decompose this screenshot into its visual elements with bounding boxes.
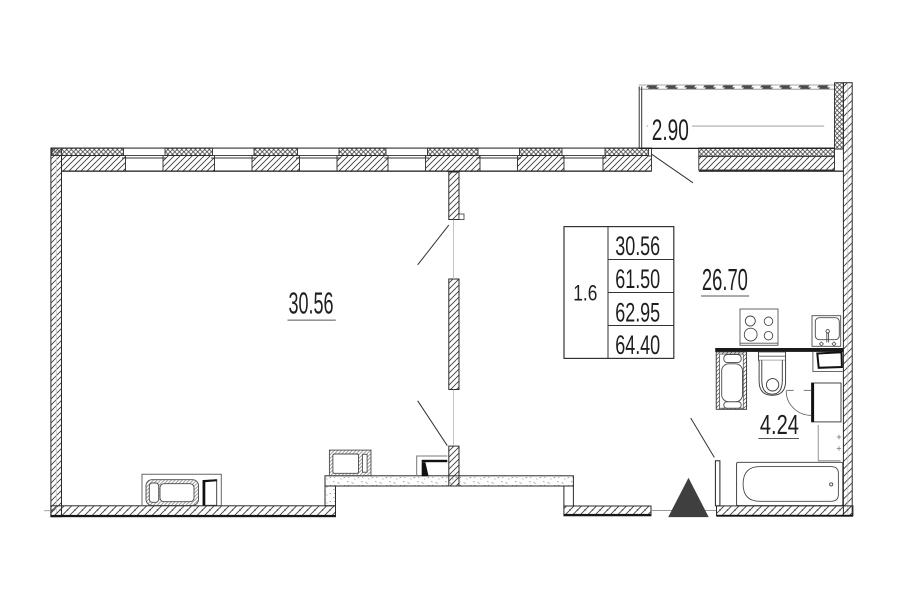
svg-text:1.6: 1.6: [573, 280, 597, 305]
svg-text:30.56: 30.56: [615, 231, 660, 261]
svg-text:30.56: 30.56: [289, 285, 334, 320]
svg-text:26.70: 26.70: [702, 262, 748, 297]
svg-text:2.90: 2.90: [652, 114, 689, 147]
svg-text:61.50: 61.50: [615, 264, 660, 294]
svg-text:4.24: 4.24: [760, 409, 799, 440]
svg-text:64.40: 64.40: [615, 330, 660, 360]
svg-text:62.95: 62.95: [615, 297, 660, 327]
